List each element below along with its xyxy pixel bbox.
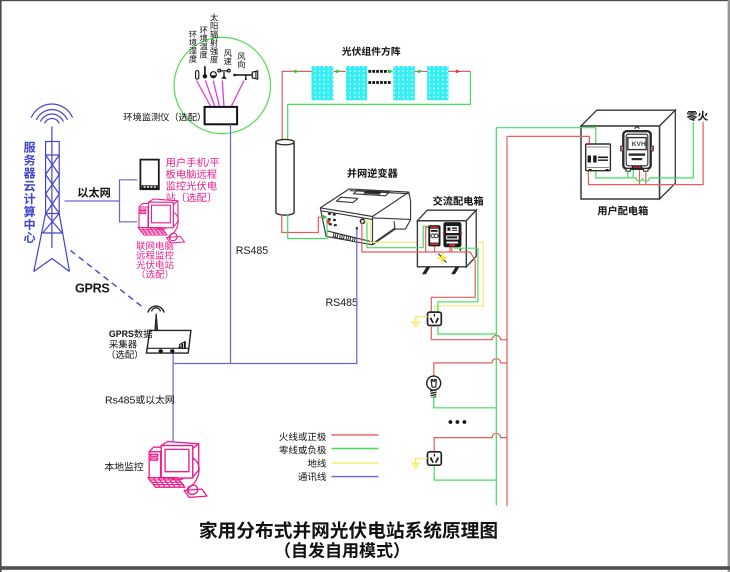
svg-text:RS485: RS485 — [326, 297, 358, 309]
svg-text:GPRS: GPRS — [109, 329, 134, 339]
svg-text:KVH: KVH — [632, 141, 646, 148]
svg-text:Rs485: Rs485 — [105, 394, 136, 406]
svg-text:GPRS: GPRS — [75, 281, 110, 295]
svg-text:RS485: RS485 — [236, 245, 268, 257]
